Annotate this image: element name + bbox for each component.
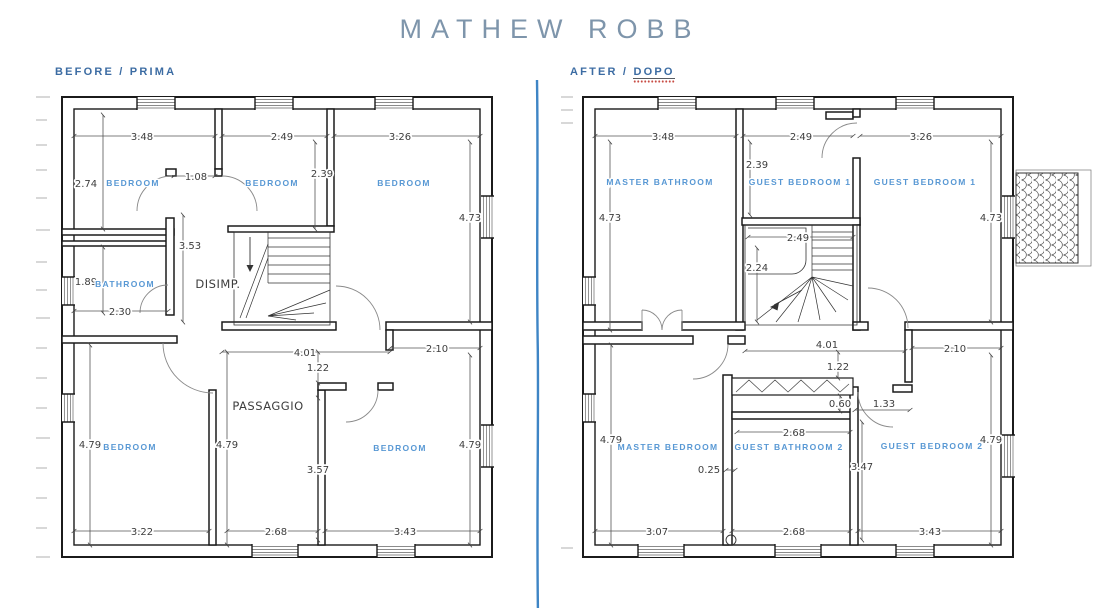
dim-label: 3.26 bbox=[389, 132, 411, 143]
dim-label: 2.10 bbox=[426, 344, 448, 355]
dim-label: 4.79 bbox=[459, 440, 481, 451]
before-dim-labels: 3.48 2.49 3.26 2.74 1.08 2.39 4.73 3.53 … bbox=[75, 132, 481, 538]
before-stairs bbox=[234, 232, 330, 325]
room-label: GUEST BEDROOM 2 bbox=[881, 441, 984, 451]
room-label: BEDROOM bbox=[106, 178, 160, 188]
after-plan: 3.48 2.49 3.26 4.73 2.39 4.73 2.49 2.24 … bbox=[561, 97, 1091, 557]
dim-label: 1.08 bbox=[185, 172, 207, 183]
dim-label: 1.33 bbox=[873, 399, 895, 410]
room-label: MASTER BEDROOM bbox=[618, 442, 719, 452]
dim-label: 2.74 bbox=[75, 179, 97, 190]
canvas: MATHEW ROBB BEFORE / PRIMA AFTER / DOPO bbox=[0, 0, 1100, 608]
dim-label: 1.89 bbox=[75, 277, 97, 288]
dim-label: 2.68 bbox=[783, 527, 805, 538]
dim-label: 4.73 bbox=[459, 213, 481, 224]
dim-label: 2.49 bbox=[787, 233, 809, 244]
dim-label: 3.48 bbox=[652, 132, 674, 143]
dim-label: 3.57 bbox=[307, 465, 329, 476]
room-label: BEDROOM bbox=[245, 178, 299, 188]
before-exterior-ticks bbox=[36, 97, 50, 557]
dim-label: 4.79 bbox=[216, 440, 238, 451]
dim-label: 3.48 bbox=[131, 132, 153, 143]
after-roof-tiles bbox=[1016, 170, 1091, 266]
dim-label: 3.43 bbox=[919, 527, 941, 538]
dim-label: 0.25 bbox=[698, 465, 720, 476]
dim-label: 3.53 bbox=[179, 241, 201, 252]
floorplans-svg: 3.48 2.49 3.26 2.74 1.08 2.39 4.73 3.53 … bbox=[0, 0, 1100, 608]
dim-label: 3.22 bbox=[131, 527, 153, 538]
dim-label: 4.01 bbox=[816, 340, 838, 351]
before-walls bbox=[62, 97, 492, 557]
dim-label: 3.26 bbox=[910, 132, 932, 143]
dim-label: 2.39 bbox=[311, 169, 333, 180]
dim-label: 1.22 bbox=[307, 363, 329, 374]
room-label: GUEST BEDROOM 1 bbox=[874, 177, 977, 187]
dim-label: 2.10 bbox=[944, 344, 966, 355]
room-label: BEDROOM bbox=[377, 178, 431, 188]
after-wardrobe bbox=[732, 378, 853, 395]
dim-label: 2.49 bbox=[271, 132, 293, 143]
room-label: GUEST BATHROOM 2 bbox=[735, 442, 844, 452]
dim-label: 4.73 bbox=[599, 213, 621, 224]
dim-label: 2.39 bbox=[746, 160, 768, 171]
dim-label: 1.22 bbox=[827, 362, 849, 373]
room-label: BEDROOM bbox=[103, 442, 157, 452]
dim-label: 2.68 bbox=[265, 527, 287, 538]
dim-label: 2.30 bbox=[109, 307, 131, 318]
dim-label: 0.60 bbox=[829, 399, 851, 410]
before-plan: 3.48 2.49 3.26 2.74 1.08 2.39 4.73 3.53 … bbox=[36, 97, 494, 557]
room-label: PASSAGGIO bbox=[232, 399, 303, 413]
dim-label: 2.49 bbox=[790, 132, 812, 143]
dim-label: 4.01 bbox=[294, 348, 316, 359]
after-dim-labels: 3.48 2.49 3.26 4.73 2.39 4.73 2.49 2.24 … bbox=[599, 132, 1002, 538]
dim-label: 3.07 bbox=[646, 527, 668, 538]
before-room-labels: BEDROOM BEDROOM BEDROOM BATHROOM DISIMP.… bbox=[95, 178, 431, 453]
divider-brushstroke bbox=[537, 80, 538, 608]
room-label: BEDROOM bbox=[373, 443, 427, 453]
dim-label: 4.79 bbox=[79, 440, 101, 451]
room-label: DISIMP. bbox=[195, 277, 240, 291]
dim-label: 3.47 bbox=[851, 462, 873, 473]
dim-label: 2.68 bbox=[783, 428, 805, 439]
dim-label: 3.43 bbox=[394, 527, 416, 538]
dim-label: 4.73 bbox=[980, 213, 1002, 224]
room-label: BATHROOM bbox=[95, 279, 155, 289]
room-label: GUEST BEDROOM 1 bbox=[749, 177, 852, 187]
after-exterior-ticks bbox=[561, 97, 573, 548]
room-label: MASTER BATHROOM bbox=[606, 177, 713, 187]
dim-label: 2.24 bbox=[746, 263, 768, 274]
after-walls bbox=[583, 97, 1013, 557]
